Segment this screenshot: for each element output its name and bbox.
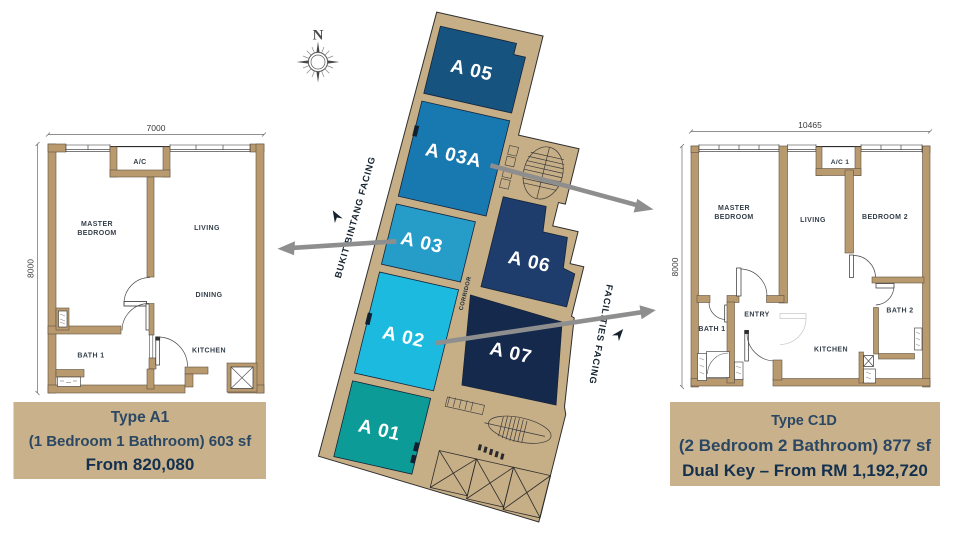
svg-text:MASTER: MASTER xyxy=(718,205,750,212)
svg-text:BATH 1: BATH 1 xyxy=(698,326,725,333)
svg-text:MASTER: MASTER xyxy=(81,221,113,228)
svg-text:BEDROOM: BEDROOM xyxy=(77,230,116,237)
svg-text:LIVING: LIVING xyxy=(800,217,826,224)
svg-text:DINING: DINING xyxy=(196,292,223,299)
svg-text:BEDROOM 2: BEDROOM 2 xyxy=(862,214,908,221)
svg-text:10465: 10465 xyxy=(798,120,822,130)
svg-text:KITCHEN: KITCHEN xyxy=(192,348,226,355)
svg-text:(1 Bedroom 1 Bathroom) 603 sf: (1 Bedroom 1 Bathroom) 603 sf xyxy=(29,433,253,450)
svg-text:BEDROOM: BEDROOM xyxy=(714,214,753,221)
svg-text:8000: 8000 xyxy=(26,259,36,278)
svg-text:8000: 8000 xyxy=(670,257,680,276)
svg-text:7000: 7000 xyxy=(147,123,166,133)
svg-text:A/C 1: A/C 1 xyxy=(831,159,850,166)
svg-text:KITCHEN: KITCHEN xyxy=(814,347,848,354)
svg-text:From 820,080: From 820,080 xyxy=(86,455,195,474)
svg-text:BATH 1: BATH 1 xyxy=(77,353,104,360)
svg-text:BATH 2: BATH 2 xyxy=(886,308,913,315)
svg-text:Type C1D: Type C1D xyxy=(771,413,837,429)
svg-text:Dual Key – From RM 1,192,720: Dual Key – From RM 1,192,720 xyxy=(682,461,928,480)
svg-text:N: N xyxy=(313,28,324,44)
svg-text:A/C: A/C xyxy=(133,159,146,166)
svg-text:(2 Bedroom 2 Bathroom) 877 sf: (2 Bedroom 2 Bathroom) 877 sf xyxy=(679,436,932,455)
svg-text:LIVING: LIVING xyxy=(194,225,220,232)
svg-text:Type A1: Type A1 xyxy=(111,409,170,426)
svg-text:ENTRY: ENTRY xyxy=(744,312,769,319)
